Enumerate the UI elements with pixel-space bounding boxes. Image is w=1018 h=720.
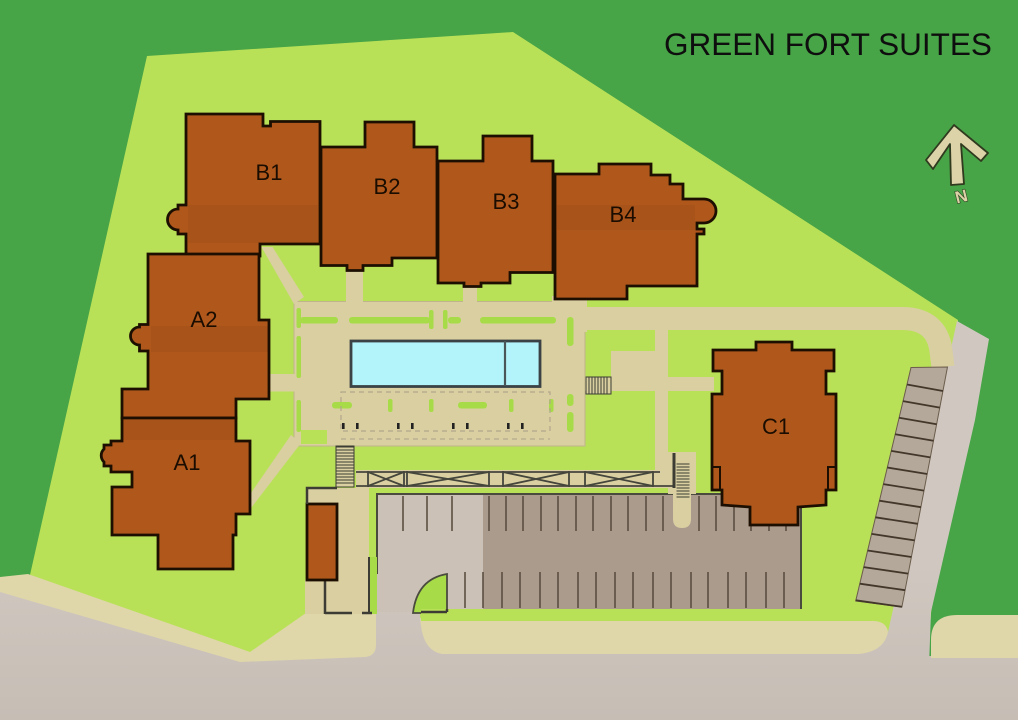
svg-text:B2: B2 [374,174,401,199]
svg-text:C1: C1 [762,414,790,439]
svg-text:GREEN FORT SUITES: GREEN FORT SUITES [664,26,992,62]
svg-text:B3: B3 [493,189,520,214]
svg-text:B4: B4 [610,202,637,227]
svg-text:A1: A1 [174,450,201,475]
svg-text:A2: A2 [191,307,218,332]
svg-text:B1: B1 [256,160,283,185]
